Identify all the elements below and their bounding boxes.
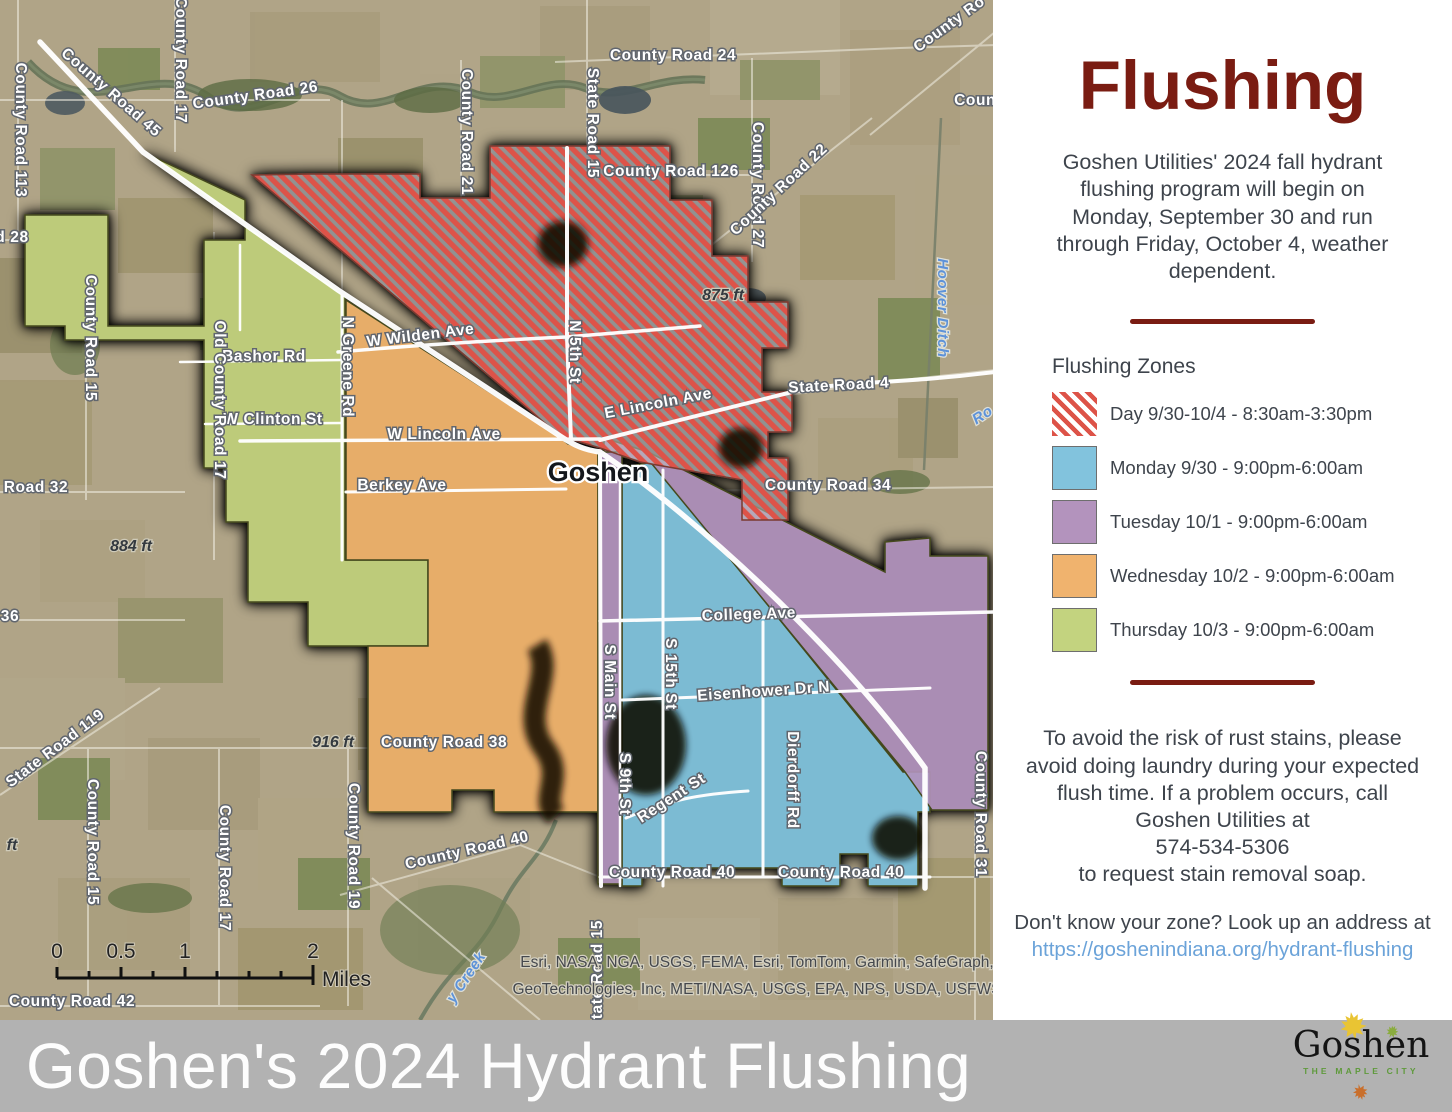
legend-item-thursday: Thursday 10/3 - 9:00pm-6:00am <box>1052 608 1452 652</box>
map-label-road: County Road 17 <box>172 0 189 123</box>
map-label-road: S Main St <box>601 644 618 719</box>
map-label-road: County Road 40 <box>404 828 531 873</box>
map-canvas: County Road 45County Road 113d 28County … <box>0 0 993 1020</box>
map-label-road: Old County Road 17 <box>211 321 228 480</box>
poster: County Road 45County Road 113d 28County … <box>0 0 1452 1112</box>
legend-swatch-monday <box>1052 446 1097 490</box>
legend-swatch-wednesday <box>1052 554 1097 598</box>
legend-item-day: Day 9/30-10/4 - 8:30am-3:30pm <box>1052 392 1452 436</box>
notice-text: to request stain removal soap. <box>1023 861 1423 888</box>
map-label-elev: ft <box>7 837 18 854</box>
notice-text: To avoid the risk of rust stains, please… <box>1026 726 1419 831</box>
map-label-road: S 9th St <box>616 753 633 816</box>
map-label-elev: 916 ft <box>312 734 354 751</box>
scale-tick-label: 1 <box>179 940 191 963</box>
map-label-road: Count <box>954 92 993 109</box>
scale-unit-label: Miles <box>322 968 371 991</box>
map-label-road: County Road 15 <box>84 779 101 905</box>
utility-phone-number: 574-534-5306 <box>1023 834 1423 861</box>
divider <box>1130 680 1315 685</box>
map-label-road: Road 32 <box>4 479 69 496</box>
map-label-road: County Road 40 <box>609 864 735 881</box>
scale-tick-label: 0.5 <box>106 940 135 963</box>
title-banner: Goshen's 2024 Hydrant Flushing Goshen TH… <box>0 1020 1452 1112</box>
map-label-road: County Road 126 <box>603 163 739 180</box>
zone-lookup: Don't know your zone? Look up an address… <box>1003 910 1443 963</box>
zone-lookup-text: Don't know your zone? Look up an address… <box>1014 911 1430 934</box>
map-label-road: County Road 24 <box>610 47 736 64</box>
map-label-road: County Road 17 <box>216 805 233 931</box>
legend-item-tuesday: Tuesday 10/1 - 9:00pm-6:00am <box>1052 500 1452 544</box>
map-label-road: Berkey Ave <box>357 477 446 494</box>
scale-tick-label: 0 <box>51 940 63 963</box>
map-label-road: County Road 27 <box>749 122 766 248</box>
map-label-road: S 15th St <box>662 638 679 710</box>
map-label-road: State Road 15 <box>584 68 601 178</box>
rust-stain-notice: To avoid the risk of rust stains, please… <box>1023 725 1423 887</box>
map-label-road: Bashor Rd <box>222 348 306 365</box>
legend-swatch-tuesday <box>1052 500 1097 544</box>
map-label-road: County Road 42 <box>9 993 135 1010</box>
map-label-road: County Road 31 <box>972 751 989 877</box>
maple-leaf-icon <box>1350 1081 1370 1101</box>
legend-item-monday: Monday 9/30 - 9:00pm-6:00am <box>1052 446 1452 490</box>
panel-title: Flushing <box>993 46 1452 125</box>
program-description: Goshen Utilities' 2024 fall hydrant flus… <box>1045 149 1401 285</box>
attribution-line: Esri, NASA, NGA, USGS, FEMA, Esri, TomTo… <box>520 954 993 971</box>
legend-label: Tuesday 10/1 - 9:00pm-6:00am <box>1110 511 1367 533</box>
map-label-road: N 5th St <box>566 320 583 383</box>
legend-swatch-thursday <box>1052 608 1097 652</box>
map-label-elev: 884 ft <box>110 538 152 555</box>
zone-lookup-link[interactable]: https://goshenindiana.org/hydrant-flushi… <box>1003 937 1443 964</box>
goshen-city-logo: Goshen THE MAPLE CITY <box>1286 1027 1436 1076</box>
map-label-water: Hoover Ditch <box>934 258 951 357</box>
legend-label: Day 9/30-10/4 - 8:30am-3:30pm <box>1110 403 1372 425</box>
divider <box>1130 319 1315 324</box>
map-label-road: County Road 21 <box>458 69 475 195</box>
map-label-road: County Road 19 <box>345 783 362 909</box>
map-label-road: W Lincoln Ave <box>387 426 500 443</box>
map-label-city: Goshen <box>548 457 649 487</box>
legend-heading: Flushing Zones <box>1052 355 1452 379</box>
map-label-road: Dierdorff Rd <box>784 731 801 829</box>
map-label-road: 36 <box>1 608 19 625</box>
flushing-zones-legend: Flushing Zones Day 9/30-10/4 - 8:30am-3:… <box>993 355 1452 652</box>
map-label-water: Ro <box>969 402 993 428</box>
logo-tagline: THE MAPLE CITY <box>1286 1066 1436 1076</box>
map-label-road: County Road 34 <box>765 477 891 494</box>
legend-swatch-day <box>1052 392 1097 436</box>
legend-label: Wednesday 10/2 - 9:00pm-6:00am <box>1110 565 1395 587</box>
map-label-road: College Ave <box>701 604 796 624</box>
map-label-road: W Clinton St <box>223 411 322 428</box>
map-label-road: State Road 4 <box>788 374 890 396</box>
map-label-road: d 28 <box>0 229 29 246</box>
map-label-road: County Road 15 <box>82 275 99 401</box>
flushing-zones-map: County Road 45County Road 113d 28County … <box>0 0 993 1020</box>
map-label-road: County Road 113 <box>12 63 29 198</box>
legend-label: Monday 9/30 - 9:00pm-6:00am <box>1110 457 1363 479</box>
info-panel: Flushing Goshen Utilities' 2024 fall hyd… <box>993 0 1452 1020</box>
map-label-road: N Greene Rd <box>339 317 356 418</box>
map-label-road: County Road 40 <box>778 864 904 881</box>
logo-wordmark: Goshen <box>1286 1027 1436 1065</box>
poster-title: Goshen's 2024 Hydrant Flushing <box>26 1020 971 1112</box>
legend-item-wednesday: Wednesday 10/2 - 9:00pm-6:00am <box>1052 554 1452 598</box>
scale-tick-label: 2 <box>307 940 319 963</box>
legend-label: Thursday 10/3 - 9:00pm-6:00am <box>1110 619 1374 641</box>
map-label-elev: 875 ft <box>702 287 744 304</box>
map-label-road: County Road 38 <box>381 734 507 751</box>
attribution-line: GeoTechnologies, Inc, METI/NASA, USGS, E… <box>513 981 993 998</box>
